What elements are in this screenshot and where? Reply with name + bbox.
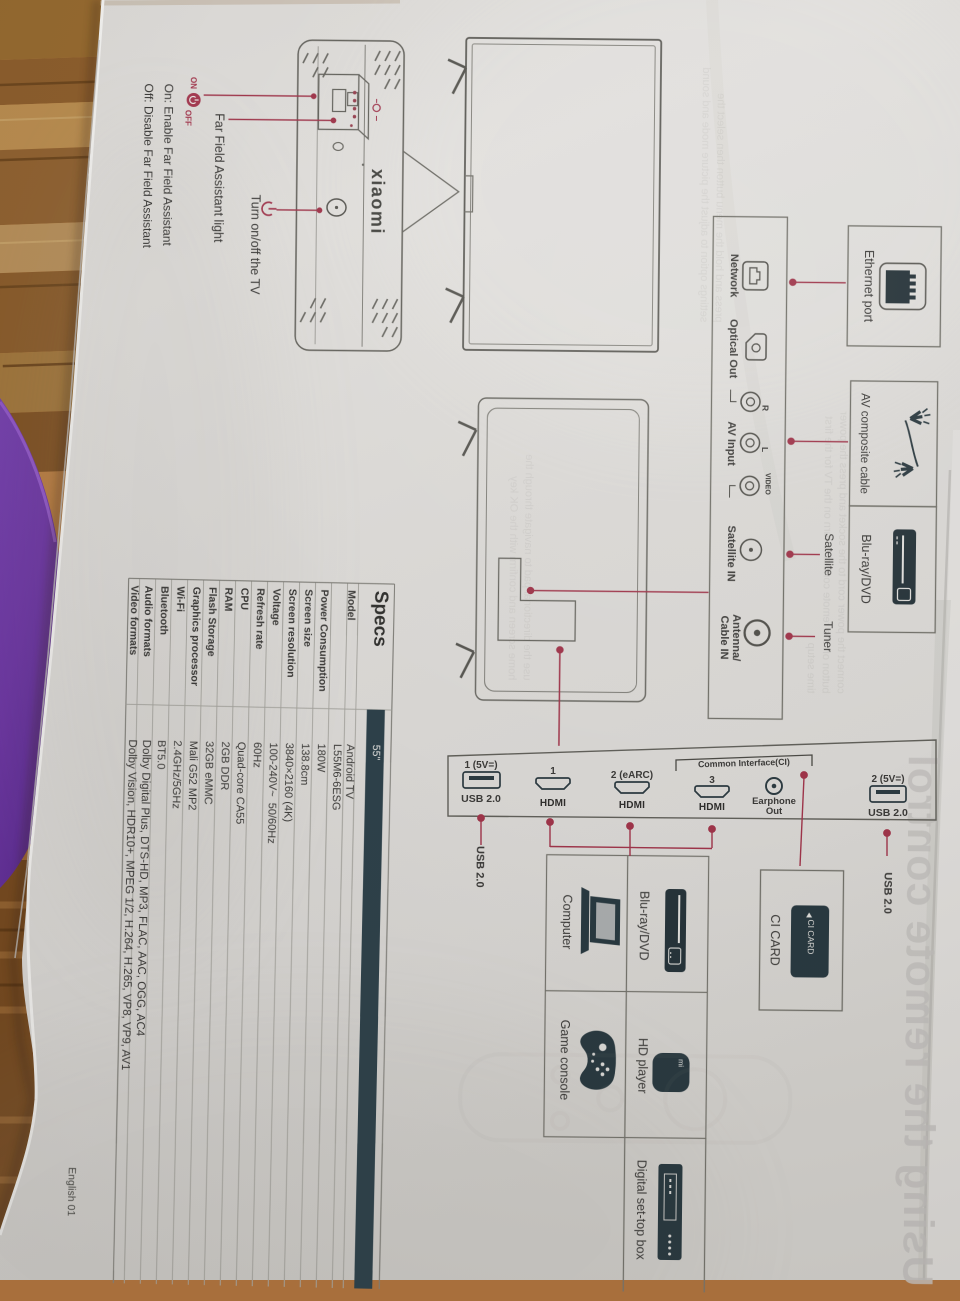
svg-text:3: 3 <box>709 775 715 786</box>
svg-text:1 (5V=): 1 (5V=) <box>464 760 497 771</box>
svg-text:1: 1 <box>550 766 556 777</box>
svg-text:Common Interface(CI): Common Interface(CI) <box>698 757 790 770</box>
svg-text:2 (5V=): 2 (5V=) <box>871 774 904 785</box>
svg-text:HDMI: HDMI <box>699 802 725 813</box>
svg-text:HDMI: HDMI <box>619 800 645 811</box>
svg-text:HDMI: HDMI <box>540 798 566 809</box>
svg-text:Out: Out <box>766 806 783 817</box>
svg-text:USB 2.0: USB 2.0 <box>461 793 501 805</box>
svg-text:2 (eARC): 2 (eARC) <box>611 770 653 781</box>
svg-text:USB 2.0: USB 2.0 <box>868 807 908 819</box>
